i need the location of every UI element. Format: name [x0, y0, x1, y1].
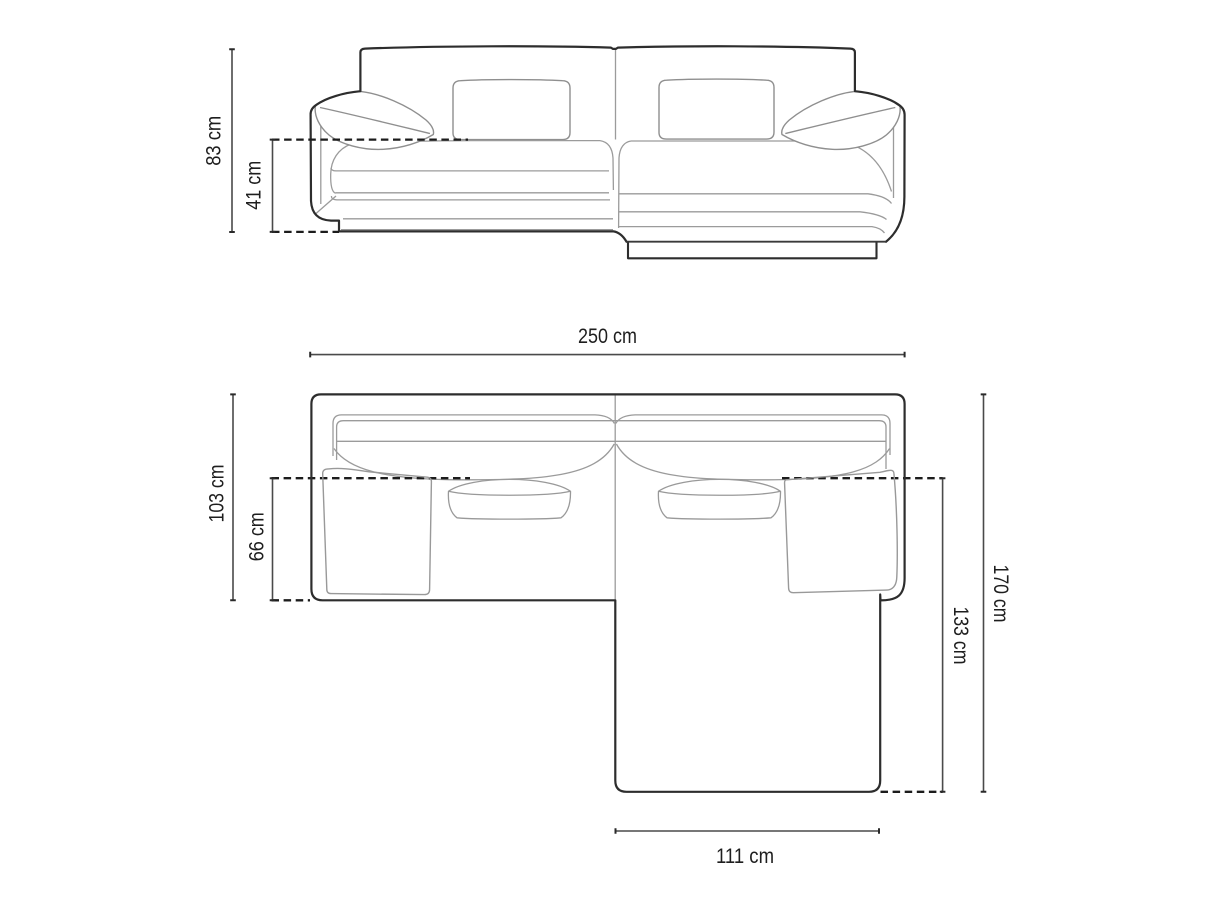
svg-text:250 cm: 250 cm [578, 325, 637, 348]
svg-text:103 cm: 103 cm [206, 465, 229, 523]
svg-text:83 cm: 83 cm [203, 116, 226, 166]
svg-text:170 cm: 170 cm [989, 565, 1012, 623]
svg-text:41 cm: 41 cm [243, 161, 266, 210]
svg-text:133 cm: 133 cm [949, 607, 972, 665]
svg-text:66 cm: 66 cm [246, 512, 269, 561]
svg-text:111 cm: 111 cm [716, 845, 774, 868]
